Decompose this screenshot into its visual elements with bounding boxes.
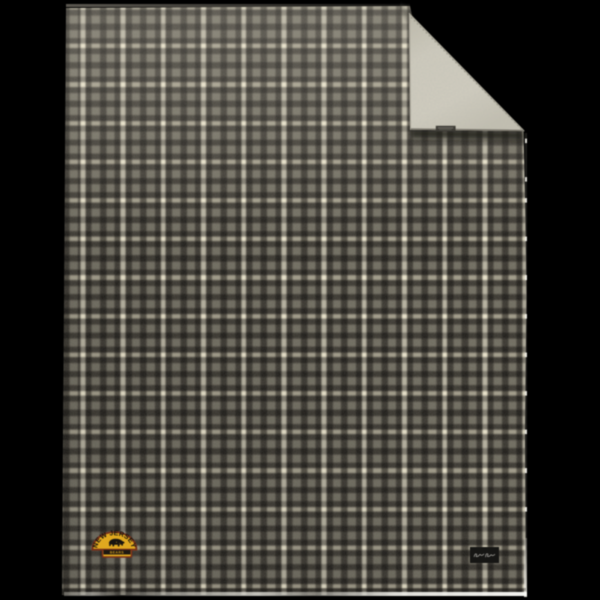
svg-text:BEARS: BEARS bbox=[110, 551, 125, 555]
